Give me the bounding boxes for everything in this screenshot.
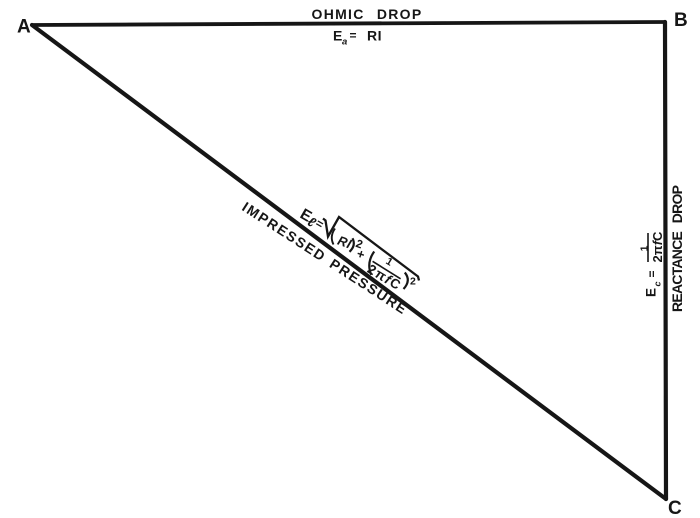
svg-text:IMPRESSED PRESSURE: IMPRESSED PRESSURE (239, 199, 411, 318)
svg-text:C: C (668, 498, 682, 518)
svg-text:=: = (350, 29, 357, 43)
svg-text:OHMIC DROP: OHMIC DROP (312, 6, 423, 22)
svg-text:1: 1 (384, 255, 395, 268)
svg-text:2: 2 (410, 276, 416, 288)
svg-text:B: B (674, 10, 688, 31)
svg-text:2πfC: 2πfC (650, 231, 665, 263)
svg-text:=: = (645, 270, 659, 277)
svg-text:REACTANCE DROP: REACTANCE DROP (669, 185, 685, 312)
svg-text:a: a (342, 37, 347, 48)
svg-text:A: A (17, 17, 31, 38)
svg-text:c: c (653, 281, 663, 286)
svg-text:RI: RI (367, 28, 382, 44)
svg-text:E: E (333, 28, 342, 44)
svg-text:E: E (644, 288, 659, 297)
